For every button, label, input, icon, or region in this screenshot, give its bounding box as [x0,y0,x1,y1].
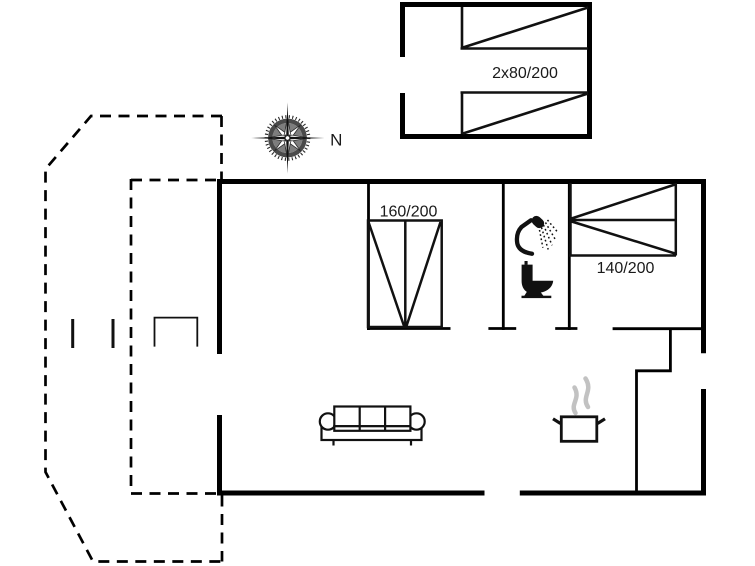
svg-text:160/200: 160/200 [380,204,438,221]
svg-text:N: N [330,131,342,150]
svg-text:140/200: 140/200 [597,260,655,277]
svg-text:2x80/200: 2x80/200 [492,65,558,82]
